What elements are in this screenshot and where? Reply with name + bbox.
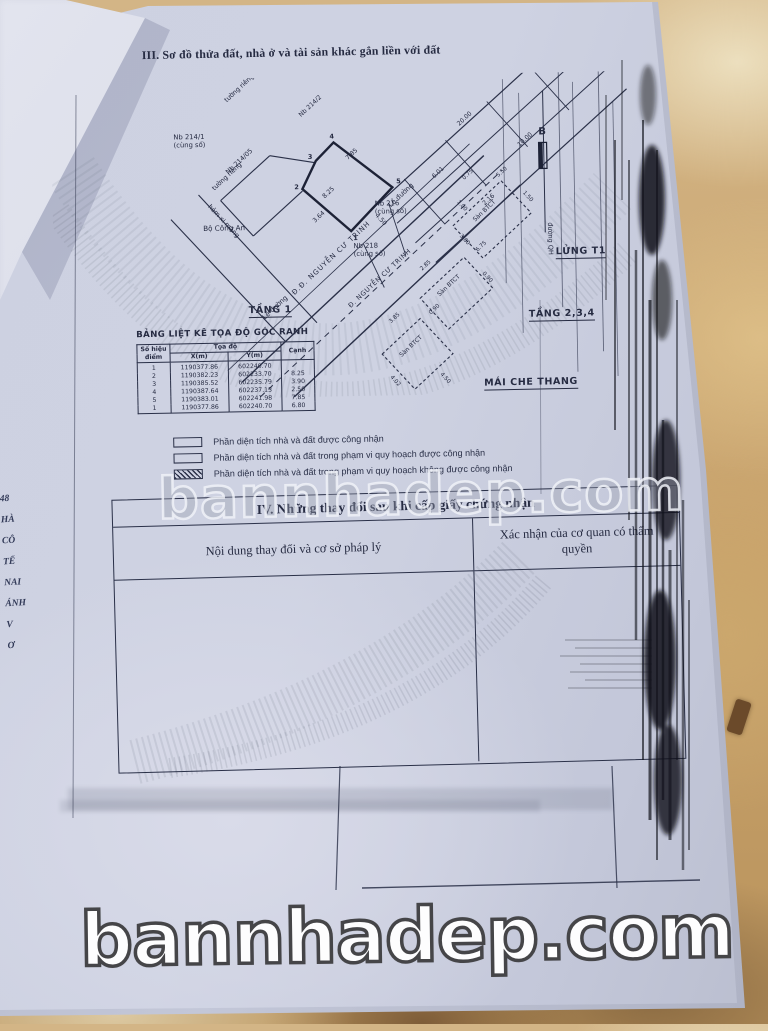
svg-text:8.25: 8.25 xyxy=(321,186,336,201)
legend-swatch-recognized xyxy=(173,437,202,448)
svg-text:Nb 214/05: Nb 214/05 xyxy=(224,147,254,176)
north-compass: B xyxy=(538,90,549,232)
banner-text: bannhadep.com xyxy=(79,888,734,983)
margin-text-fragments: 48 HÀ CÔ TẾ NAI ÁNH V Ơ xyxy=(0,488,36,657)
coord-table: Số hiệu điểm Tọa độ Cạnh X(m) Y(m) 11190… xyxy=(136,341,315,414)
svg-text:(cùng số): (cùng số) xyxy=(173,141,205,150)
svg-text:đường QH: đường QH xyxy=(546,222,555,255)
svg-text:3.85: 3.85 xyxy=(388,312,402,325)
heading-tang-1: TẦNG 1 xyxy=(249,304,292,318)
svg-text:Bộ Công An: Bộ Công An xyxy=(203,223,245,233)
section4-empty-body xyxy=(115,566,686,771)
legend-swatch-planning-recognized xyxy=(173,453,202,464)
svg-text:tường riêng: tường riêng xyxy=(223,72,256,104)
svg-text:4: 4 xyxy=(329,132,334,140)
svg-text:3.64: 3.64 xyxy=(312,210,327,225)
heading-mai-che-thang: MÁI CHE THANG xyxy=(484,376,578,391)
svg-text:1.00: 1.00 xyxy=(455,199,468,213)
section3-title: III. Sơ đồ thửa đất, nhà ở và tài sản kh… xyxy=(142,41,502,63)
svg-text:(cùng số): (cùng số) xyxy=(354,249,386,258)
col-edge: Cạnh xyxy=(281,341,314,360)
svg-text:1.50: 1.50 xyxy=(521,190,534,204)
svg-text:5: 5 xyxy=(396,177,401,185)
svg-text:6.01: 6.01 xyxy=(431,165,446,180)
svg-text:(cùng số): (cùng số) xyxy=(375,207,407,216)
heading-tang-234: TẦNG 2,3,4 xyxy=(529,307,595,321)
heading-lung-t1: LỬNG T1 xyxy=(556,245,607,259)
svg-text:Nb 214/2: Nb 214/2 xyxy=(298,94,324,119)
col-point: Số hiệu điểm xyxy=(137,344,170,363)
svg-text:3: 3 xyxy=(308,153,313,161)
svg-text:hẻm xi măng: hẻm xi măng xyxy=(206,203,241,240)
svg-text:2.85: 2.85 xyxy=(419,259,433,272)
svg-text:2: 2 xyxy=(294,183,299,191)
photo-of-land-certificate: { "photo": { "watermark": "bannhadep.com… xyxy=(0,0,768,1024)
svg-text:10.00: 10.00 xyxy=(516,131,534,148)
watermark-text: bannhadep.com xyxy=(157,457,685,532)
svg-text:6.75: 6.75 xyxy=(475,240,489,253)
svg-text:B: B xyxy=(538,126,546,137)
